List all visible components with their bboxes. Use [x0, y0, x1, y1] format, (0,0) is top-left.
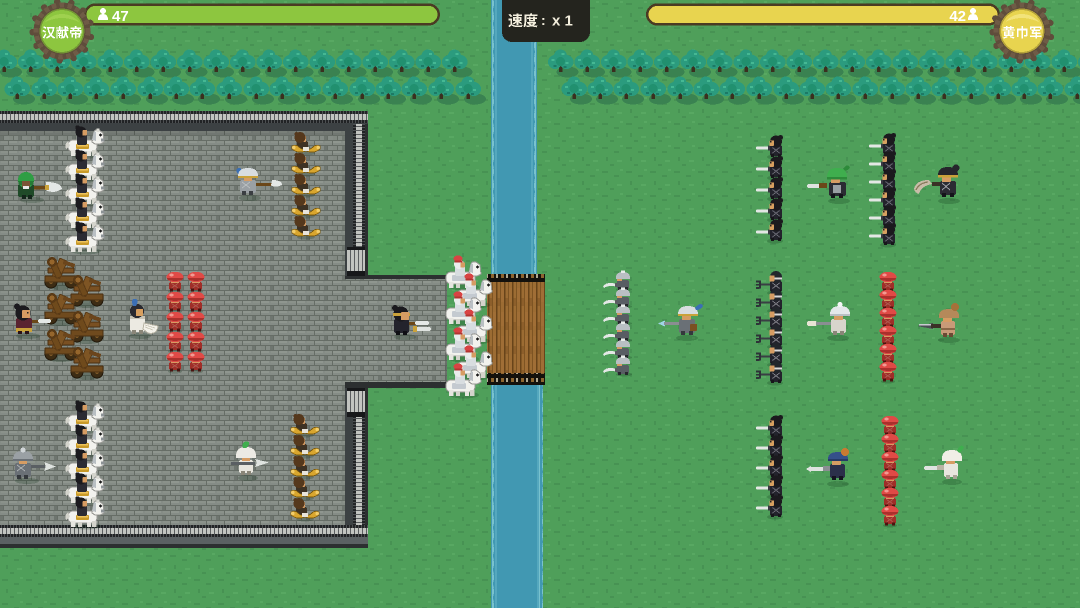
- svg-text::: :: [541, 12, 546, 28]
- svg-text:42: 42: [949, 8, 966, 25]
- svg-text:x 1: x 1: [552, 13, 573, 30]
- svg-text:47: 47: [112, 8, 129, 25]
